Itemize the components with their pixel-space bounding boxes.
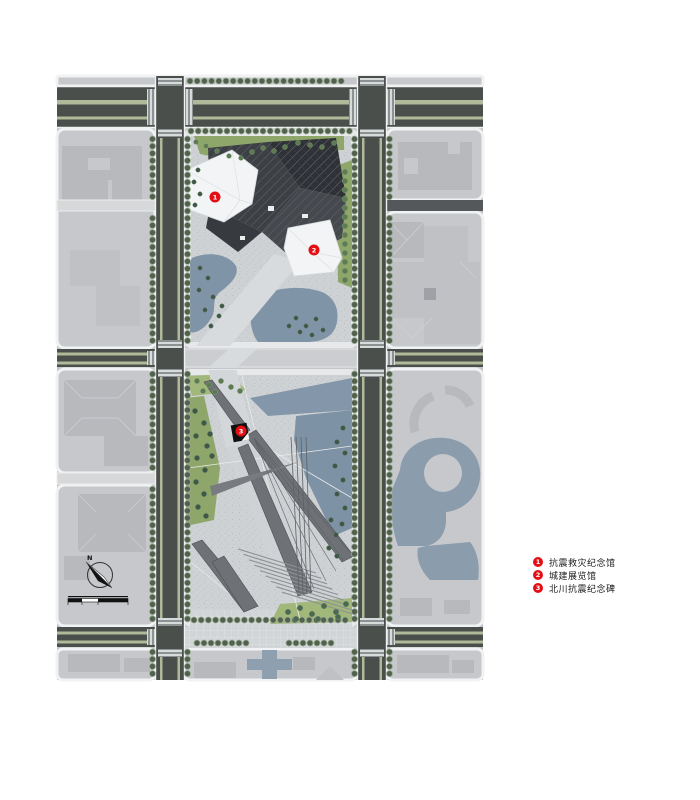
tree-icon <box>273 78 279 84</box>
tree-icon <box>150 508 156 514</box>
marker-3: 3 <box>236 426 247 437</box>
tree-icon <box>150 501 156 507</box>
tree-icon <box>352 663 358 669</box>
tree-icon <box>352 609 358 615</box>
tree-icon <box>185 280 191 286</box>
tree-icon <box>185 522 191 528</box>
tree-icon <box>185 330 191 336</box>
tree-icon <box>205 617 211 623</box>
tree-icon <box>343 601 349 607</box>
tree-icon <box>230 78 236 84</box>
tree-icon <box>298 330 302 334</box>
tree-icon <box>387 294 393 300</box>
tree-icon <box>387 558 393 564</box>
tree-icon <box>387 414 393 420</box>
tree-icon <box>304 324 308 328</box>
tree-icon <box>237 78 243 84</box>
tree-icon <box>387 486 393 492</box>
tree-icon <box>352 436 358 442</box>
tree-icon <box>387 493 393 499</box>
tree-icon <box>352 522 358 528</box>
site-mid-band <box>184 348 358 368</box>
tree-icon <box>297 605 303 611</box>
tree-icon <box>150 251 156 257</box>
tree-icon <box>352 551 358 557</box>
tree-icon <box>352 309 358 315</box>
tree-icon <box>282 128 288 134</box>
tree-icon <box>185 656 191 662</box>
tree-icon <box>342 223 348 229</box>
tree-icon <box>194 455 199 460</box>
tree-icon <box>387 385 393 391</box>
tree-icon <box>220 617 226 623</box>
tree-icon <box>150 537 156 543</box>
tree-icon <box>352 222 358 228</box>
tree-icon <box>285 617 291 623</box>
tree-icon <box>195 128 201 134</box>
tree-icon <box>195 504 200 509</box>
tree-icon <box>194 640 200 646</box>
tree-icon <box>387 573 393 579</box>
tree-icon <box>234 617 240 623</box>
tree-icon <box>196 168 200 172</box>
tree-icon <box>310 128 316 134</box>
tree-icon <box>185 565 191 571</box>
tree-icon <box>387 230 393 236</box>
tree-icon <box>185 273 191 279</box>
tree-icon <box>352 529 358 535</box>
tree-icon <box>150 222 156 228</box>
tree-icon <box>352 501 358 507</box>
tree-icon <box>387 649 393 655</box>
tree-icon <box>203 513 208 518</box>
tree-icon <box>317 78 323 84</box>
tree-icon <box>387 251 393 257</box>
svg-text:3: 3 <box>239 428 244 436</box>
tree-icon <box>300 640 306 646</box>
tree-icon <box>335 554 340 559</box>
tree-icon <box>352 215 358 221</box>
legend-dot-1: 1 <box>533 557 543 567</box>
tree-icon <box>352 165 358 171</box>
tree-icon <box>150 266 156 272</box>
tree-icon <box>274 128 280 134</box>
tree-icon <box>185 515 191 521</box>
tree-icon <box>352 201 358 207</box>
tree-icon <box>185 179 191 185</box>
tree-icon <box>150 616 156 622</box>
tree-icon <box>321 603 327 609</box>
tree-icon <box>387 601 393 607</box>
tree-icon <box>352 172 358 178</box>
tree-icon <box>185 587 191 593</box>
tree-icon <box>236 640 242 646</box>
tree-icon <box>185 208 191 214</box>
tree-icon <box>185 443 191 449</box>
tree-icon <box>294 316 298 320</box>
tree-icon <box>387 338 393 344</box>
tree-icon <box>238 128 244 134</box>
tree-icon <box>387 136 393 142</box>
legend-item-3: 3 北川抗震纪念碑 <box>533 583 616 593</box>
legend-dot-2: 2 <box>533 570 543 580</box>
tree-icon <box>306 617 312 623</box>
tree-icon <box>150 244 156 250</box>
tree-icon <box>150 558 156 564</box>
tree-icon <box>150 230 156 236</box>
tree-icon <box>185 266 191 272</box>
tree-icon <box>185 601 191 607</box>
tree-icon <box>202 467 207 472</box>
tree-icon <box>320 145 325 150</box>
tree-icon <box>352 194 358 200</box>
marker-1: 1 <box>210 192 221 203</box>
crosswalk <box>158 618 182 626</box>
crosswalk <box>158 369 182 377</box>
tree-icon <box>185 573 191 579</box>
tree-icon <box>352 594 358 600</box>
tree-icon <box>352 287 358 293</box>
tree-icon <box>227 617 233 623</box>
tree-icon <box>206 382 211 387</box>
tree-icon <box>185 407 191 413</box>
tree-icon <box>387 479 393 485</box>
tree-icon <box>333 464 338 469</box>
tree-icon <box>325 128 331 134</box>
tree-icon <box>150 136 156 142</box>
tree-icon <box>239 156 244 161</box>
tree-icon <box>150 573 156 579</box>
plan-sheet: N 1 2 3 1 抗震救灾纪念馆 2 城建展览馆 3 北川抗震纪念碑 <box>0 0 700 800</box>
tree-icon <box>150 302 156 308</box>
tree-icon <box>387 273 393 279</box>
tree-icon <box>150 150 156 156</box>
crosswalk <box>360 618 384 626</box>
tree-icon <box>253 128 259 134</box>
tree-icon <box>352 537 358 543</box>
crosswalk <box>387 89 395 125</box>
tree-icon <box>342 268 348 274</box>
tree-icon <box>185 400 191 406</box>
tree-icon <box>352 515 358 521</box>
tree-icon <box>341 426 346 431</box>
tree-icon <box>387 222 393 228</box>
tree-icon <box>387 330 393 336</box>
tree-icon <box>185 230 191 236</box>
tree-icon <box>352 656 358 662</box>
tree-icon <box>150 443 156 449</box>
tree-icon <box>341 478 346 483</box>
tree-icon <box>387 609 393 615</box>
tree-icon <box>198 266 202 270</box>
tree-icon <box>185 309 191 315</box>
tree-icon <box>150 601 156 607</box>
tree-icon <box>309 78 315 84</box>
tree-icon <box>150 194 156 200</box>
tree-icon <box>342 241 348 247</box>
tree-icon <box>342 617 348 623</box>
legend-item-2: 2 城建展览馆 <box>533 570 616 580</box>
crosswalk <box>158 340 182 348</box>
tree-icon <box>207 431 212 436</box>
tree-icon <box>352 371 358 377</box>
tree-icon <box>150 165 156 171</box>
crosswalk <box>387 629 395 645</box>
tree-icon <box>185 316 191 322</box>
tree-icon <box>220 304 224 308</box>
tree-icon <box>352 508 358 514</box>
tree-icon <box>150 287 156 293</box>
tree-icon <box>352 565 358 571</box>
tree-icon <box>283 145 288 150</box>
tree-icon <box>201 78 207 84</box>
tree-icon <box>150 671 156 677</box>
tree-icon <box>352 294 358 300</box>
tree-icon <box>352 414 358 420</box>
tree-icon <box>216 78 222 84</box>
tree-icon <box>310 333 314 337</box>
tree-icon <box>150 493 156 499</box>
tree-icon <box>185 450 191 456</box>
tree-icon <box>150 407 156 413</box>
tree-icon <box>150 215 156 221</box>
tree-icon <box>342 169 348 175</box>
tree-icon <box>150 450 156 456</box>
tree-icon <box>209 78 215 84</box>
tree-icon <box>352 143 358 149</box>
tree-icon <box>204 144 209 149</box>
tree-icon <box>185 237 191 243</box>
tree-icon <box>352 208 358 214</box>
tree-icon <box>185 371 191 377</box>
tree-icon <box>299 617 305 623</box>
tree-icon <box>352 244 358 250</box>
tree-icon <box>328 640 334 646</box>
tree-icon <box>185 594 191 600</box>
tree-icon <box>352 465 358 471</box>
tree-icon <box>352 493 358 499</box>
tree-icon <box>185 429 191 435</box>
tree-icon <box>185 501 191 507</box>
tree-icon <box>387 316 393 322</box>
tree-icon <box>185 616 191 622</box>
legend-label-2: 城建展览馆 <box>549 569 597 582</box>
tree-icon <box>352 558 358 564</box>
tree-icon <box>185 671 191 677</box>
tree-icon <box>263 617 269 623</box>
tree-icon <box>185 472 191 478</box>
tree-icon <box>272 149 277 154</box>
tree-icon <box>343 506 348 511</box>
tree-icon <box>314 640 320 646</box>
tree-icon <box>185 393 191 399</box>
tree-icon <box>352 338 358 344</box>
tree-icon <box>335 492 340 497</box>
tree-icon <box>185 150 191 156</box>
tree-icon <box>215 640 221 646</box>
tree-icon <box>352 316 358 322</box>
tree-icon <box>237 388 242 393</box>
tree-icon <box>213 617 219 623</box>
tree-icon <box>206 276 210 280</box>
legend-label-1: 抗震救灾纪念馆 <box>549 556 616 569</box>
tree-icon <box>270 617 276 623</box>
tree-icon <box>387 457 393 463</box>
tree-icon <box>185 143 191 149</box>
tree-icon <box>150 400 156 406</box>
tree-icon <box>185 294 191 300</box>
tree-icon <box>387 565 393 571</box>
tree-icon <box>150 158 156 164</box>
tree-icon <box>387 587 393 593</box>
tree-icon <box>243 640 249 646</box>
tree-icon <box>212 389 217 394</box>
tree-icon <box>185 201 191 207</box>
tree-icon <box>387 378 393 384</box>
tree-icon <box>352 649 358 655</box>
tree-icon <box>387 450 393 456</box>
tree-icon <box>193 433 198 438</box>
tree-icon <box>245 78 251 84</box>
tree-icon <box>387 616 393 622</box>
tree-icon <box>194 378 199 383</box>
tree-icon <box>285 609 291 615</box>
tree-icon <box>185 194 191 200</box>
tree-icon <box>387 309 393 315</box>
legend-label-3: 北川抗震纪念碑 <box>549 582 616 595</box>
lane-west-1 <box>57 200 156 211</box>
tree-icon <box>387 407 393 413</box>
tree-icon <box>352 486 358 492</box>
tree-icon <box>197 288 201 292</box>
tree-icon <box>387 594 393 600</box>
tree-icon <box>352 273 358 279</box>
tree-icon <box>202 128 208 134</box>
tree-icon <box>387 429 393 435</box>
tree-icon <box>150 309 156 315</box>
tree-icon <box>185 551 191 557</box>
tree-icon <box>150 414 156 420</box>
tree-icon <box>343 451 348 456</box>
tree-icon <box>327 546 332 551</box>
tree-icon <box>324 78 330 84</box>
tree-icon <box>293 616 299 622</box>
tree-icon <box>250 150 255 155</box>
tree-icon <box>352 150 358 156</box>
tree-icon <box>387 671 393 677</box>
tree-icon <box>150 385 156 391</box>
tree-icon <box>150 565 156 571</box>
tree-icon <box>352 136 358 142</box>
tree-icon <box>150 429 156 435</box>
tree-icon <box>150 143 156 149</box>
crosswalk <box>360 369 384 377</box>
tree-icon <box>204 443 209 448</box>
tree-icon <box>387 537 393 543</box>
tree-icon <box>200 388 205 393</box>
tree-icon <box>303 128 309 134</box>
tree-icon <box>203 308 207 312</box>
tree-icon <box>342 205 348 211</box>
legend-dot-3: 3 <box>533 583 543 593</box>
tree-icon <box>185 436 191 442</box>
tree-icon <box>229 640 235 646</box>
tree-icon <box>185 251 191 257</box>
tree-icon <box>387 544 393 550</box>
tree-icon <box>387 508 393 514</box>
tree-icon <box>352 280 358 286</box>
tree-icon <box>192 180 196 184</box>
tree-icon <box>340 522 345 527</box>
tree-icon <box>387 280 393 286</box>
tree-icon <box>352 186 358 192</box>
tree-icon <box>150 457 156 463</box>
tree-icon <box>150 186 156 192</box>
tree-icon <box>352 158 358 164</box>
tree-icon <box>224 128 230 134</box>
tree-icon <box>352 407 358 413</box>
tree-icon <box>289 128 295 134</box>
tree-icon <box>217 314 221 318</box>
tree-icon <box>352 544 358 550</box>
tree-icon <box>352 237 358 243</box>
tree-icon <box>246 128 252 134</box>
tree-icon <box>387 656 393 662</box>
tree-icon <box>338 78 344 84</box>
tree-icon <box>193 479 198 484</box>
tree-icon <box>352 400 358 406</box>
tree-icon <box>185 544 191 550</box>
tree-icon <box>387 143 393 149</box>
tree-icon <box>150 515 156 521</box>
tree-icon <box>185 457 191 463</box>
tree-icon <box>387 287 393 293</box>
tree-icon <box>150 338 156 344</box>
tree-icon <box>185 663 191 669</box>
tree-icon <box>223 78 229 84</box>
tree-icon <box>185 323 191 329</box>
tree-icon <box>387 465 393 471</box>
tree-icon <box>387 393 393 399</box>
tree-icon <box>288 78 294 84</box>
tree-icon <box>335 440 340 445</box>
tree-icon <box>352 587 358 593</box>
tree-icon <box>185 302 191 308</box>
tree-icon <box>387 443 393 449</box>
tree-icon <box>261 146 266 151</box>
tree-icon <box>308 143 313 148</box>
tree-icon <box>185 580 191 586</box>
tree-icon <box>352 450 358 456</box>
tree-icon <box>185 165 191 171</box>
tree-icon <box>187 78 193 84</box>
tree-icon <box>318 128 324 134</box>
crosswalk <box>147 629 155 645</box>
crosswalk <box>360 78 384 86</box>
tree-icon <box>321 328 325 332</box>
tree-icon <box>352 429 358 435</box>
tree-icon <box>352 671 358 677</box>
tree-icon <box>150 544 156 550</box>
tree-icon <box>321 617 327 623</box>
tree-icon <box>387 244 393 250</box>
tree-icon <box>352 573 358 579</box>
north-label: N <box>87 554 92 562</box>
tree-icon <box>208 640 214 646</box>
tree-icon <box>342 250 348 256</box>
tree-icon <box>352 479 358 485</box>
crosswalk <box>158 129 182 137</box>
